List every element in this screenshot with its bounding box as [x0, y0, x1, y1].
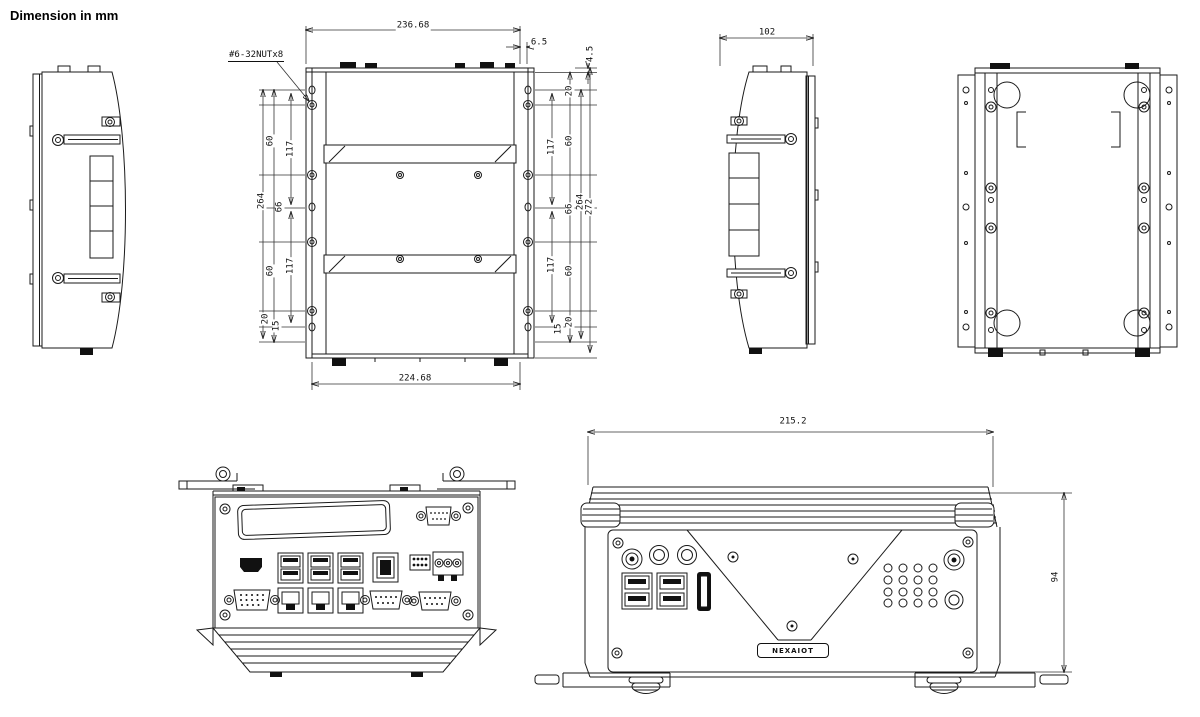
mount-brackets	[179, 467, 515, 489]
dim-front-height: 94	[1052, 571, 1061, 584]
dim-edge-offset-v: 4.5	[587, 45, 596, 63]
feet-and-brackets	[535, 673, 1068, 694]
top-fins	[584, 487, 997, 527]
rear-heatsink	[197, 628, 496, 677]
audio-jacks	[650, 546, 697, 565]
rear-io-view	[175, 445, 520, 695]
power-button	[945, 591, 963, 609]
dim-right-272: 272	[586, 198, 595, 216]
antenna-connector-right	[944, 550, 964, 570]
brand-logo: NEXAIOT	[757, 643, 829, 658]
com-port-1	[361, 591, 412, 609]
dim-right-20a: 20	[566, 85, 575, 98]
dim-edge-offset-h: 6.5	[530, 39, 548, 48]
side-back-panel	[806, 76, 818, 344]
dim-left-60b: 60	[267, 265, 276, 278]
mount-nuts	[308, 86, 533, 331]
dim-front-width: 215.2	[778, 418, 807, 427]
sheet-title: Dimension in mm	[10, 8, 118, 23]
usb-ports-front	[622, 573, 687, 609]
usb-ports	[278, 553, 363, 583]
hdmi-port	[240, 558, 262, 572]
dim-right-117a: 117	[548, 138, 557, 156]
dim-right-20b: 20	[566, 316, 575, 329]
lan-ports	[278, 588, 363, 613]
dim-left-20: 20	[262, 313, 271, 326]
side-fin-body	[727, 66, 807, 354]
expansion-slot	[237, 500, 390, 539]
left-side-view	[28, 60, 148, 360]
right-side-view	[703, 18, 843, 363]
dimension-drawing-sheet: Dimension in mm	[0, 0, 1200, 717]
dim-left-60a: 60	[267, 135, 276, 148]
usb-b-port	[373, 553, 398, 582]
com-port-2	[410, 592, 461, 610]
side-fin-body	[42, 66, 126, 355]
depth-dimension	[720, 34, 813, 66]
dim-right-66: 66	[566, 203, 575, 216]
dim-side-depth: 102	[758, 29, 776, 38]
dim-top-overall-width: 236.68	[396, 22, 431, 31]
vga-port	[225, 590, 280, 610]
dim-right-60b: 60	[566, 265, 575, 278]
dim-left-117b: 117	[287, 257, 296, 275]
displayport	[697, 572, 711, 611]
dim-right-60a: 60	[566, 135, 575, 148]
dim-left-117a: 117	[287, 140, 296, 158]
power-terminal-block	[433, 552, 463, 581]
dim-left-15: 15	[273, 320, 282, 333]
dio-header	[410, 555, 430, 570]
nut-callout: #6-32NUTx8	[228, 50, 284, 62]
antenna-connector-left	[622, 549, 642, 569]
vesa-corner-mark	[1017, 112, 1026, 147]
bottom-view	[945, 55, 1190, 365]
front-view	[575, 415, 1080, 715]
top-view-body	[306, 62, 534, 366]
vesa-corner-mark	[1111, 112, 1120, 147]
wall-mount-wings	[958, 75, 1177, 347]
dim-bottom-mount-width: 224.68	[398, 375, 433, 384]
dim-left-264: 264	[258, 192, 267, 210]
top-view-dimensions	[259, 26, 597, 390]
width-dimension	[588, 432, 993, 487]
bottom-plate	[975, 63, 1160, 357]
com-port-top	[417, 507, 461, 525]
speaker-grille	[884, 564, 937, 607]
side-back-panel	[30, 74, 42, 346]
dim-right-15: 15	[555, 323, 564, 336]
plate-screws	[986, 88, 1149, 333]
dim-left-66: 66	[276, 201, 285, 214]
dim-right-117b: 117	[548, 256, 557, 274]
